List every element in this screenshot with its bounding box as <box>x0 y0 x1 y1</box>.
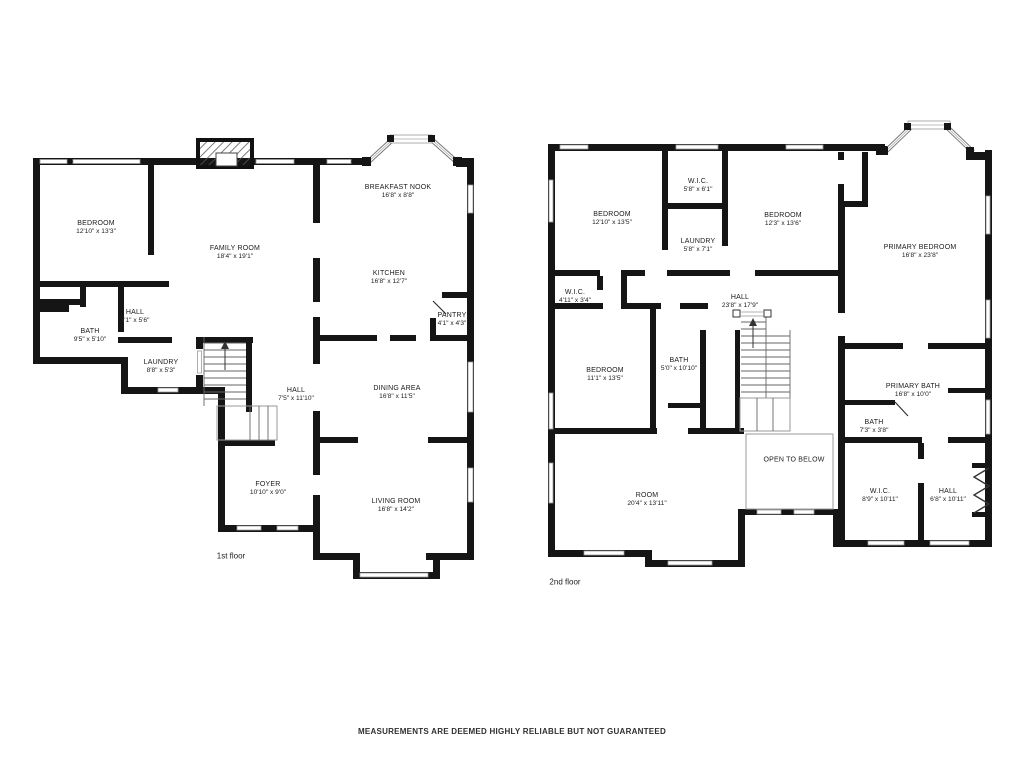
room-label-bath-small-2f: BATH 7'3" x 3'8" <box>860 418 889 436</box>
room-label-primary-bath: PRIMARY BATH 16'8" x 10'0" <box>886 382 940 400</box>
floorplan-drawing: .w{fill:#151515;} .win{fill:#ffffff;stro… <box>0 0 1024 768</box>
floor1-bay-window <box>362 135 462 166</box>
floor2-stairs-icon <box>733 310 790 431</box>
toilet-door-line <box>895 402 908 416</box>
room-label-bedroom2-2f: BEDROOM 12'3" x 13'6" <box>764 211 802 229</box>
room-label-kitchen: KITCHEN 16'8" x 12'7" <box>371 269 407 287</box>
floor2-walls <box>548 144 992 567</box>
room-label-primary-bedroom: PRIMARY BEDROOM 16'8" x 23'8" <box>884 243 957 261</box>
room-label-family-room: FAMILY ROOM 18'4" x 19'1" <box>210 244 260 262</box>
floor1-caption: 1st floor <box>217 552 245 561</box>
room-label-dining-area: DINING AREA 16'8" x 11'5" <box>373 384 420 402</box>
floor2-caption: 2nd floor <box>549 578 580 587</box>
room-label-room-2f: ROOM 20'4" x 13'11" <box>627 491 666 509</box>
room-label-bedroom-1f: BEDROOM 12'10" x 13'3" <box>76 219 116 237</box>
room-label-breakfast-nook: BREAKFAST NOOK 16'8" x 8'8" <box>365 183 431 201</box>
room-label-hall-main-1f: HALL 7'5" x 11'10" <box>278 386 314 404</box>
room-label-hall-small-1f: HALL 3'1" x 5'6" <box>121 308 150 326</box>
room-label-bath-1f: BATH 9'5" x 5'10" <box>74 327 107 345</box>
room-label-wic-primary: W.I.C. 8'9" x 10'11" <box>862 487 898 505</box>
room-label-hall-primary: HALL 6'8" x 10'11" <box>930 487 966 505</box>
room-label-bedroom1-2f: BEDROOM 12'10" x 13'5" <box>592 210 632 228</box>
floor1-fireplace-icon <box>198 140 252 167</box>
room-label-wic-top: W.I.C. 5'8" x 6'1" <box>684 177 713 195</box>
floor2-bay-window <box>880 121 974 155</box>
room-label-hall-2f: HALL 23'8" x 17'9" <box>722 293 758 311</box>
room-label-laundry-2f: LAUNDRY 5'8" x 7'1" <box>681 237 716 255</box>
room-label-laundry-1f: LAUNDRY 8'8" x 5'3" <box>144 358 179 376</box>
room-label-living-room: LIVING ROOM 16'8" x 14'2" <box>372 497 421 515</box>
room-label-open-to-below: OPEN TO BELOW <box>763 455 824 464</box>
room-label-bath-2f: BATH 5'0" x 10'10" <box>661 356 697 374</box>
room-label-foyer: FOYER 10'10" x 9'0" <box>250 480 286 498</box>
room-label-bedroom3-2f: BEDROOM 11'1" x 13'5" <box>586 366 624 384</box>
open-to-below-railing <box>746 434 833 509</box>
room-label-wic-small: W.I.C. 4'11" x 3'4" <box>559 288 591 306</box>
disclaimer-text: MEASUREMENTS ARE DEEMED HIGHLY RELIABLE … <box>0 727 1024 736</box>
room-label-pantry: PANTRY 4'1" x 4'3" <box>438 311 467 329</box>
floorplan-page: .w{fill:#151515;} .win{fill:#ffffff;stro… <box>0 0 1024 768</box>
